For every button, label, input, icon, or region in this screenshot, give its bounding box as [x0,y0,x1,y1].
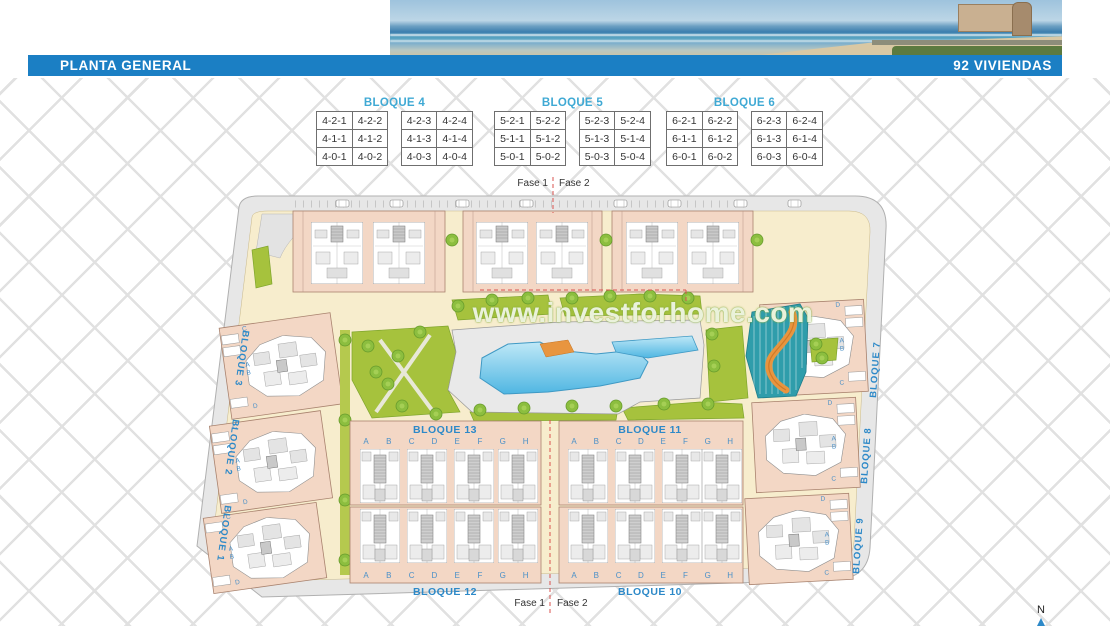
unit-letter: E [455,437,460,446]
unit-letter: G [705,571,711,580]
unit-cell: 4-0-1 [317,148,353,166]
unit-cell: 6-2-1 [667,112,703,130]
unit-cell: 5-0-4 [615,148,651,166]
unit-letter: E [455,571,460,580]
unit-letter: H [523,437,529,446]
unit-letter: C [616,571,622,580]
bloque-13-strip: BLOQUE 13 [350,421,541,505]
bloque-4-table-block: BLOQUE 4 4-2-1 4-2-2 4-2-3 4-2-4 4-1-1 4… [316,97,473,166]
unit-letter: B [386,437,391,446]
fase-gap-cell [388,148,401,166]
page-title: PLANTA GENERAL [60,58,191,73]
unit-letter: A [363,571,369,580]
watchtower-building [958,4,1016,32]
fase-gap-cell [566,148,579,166]
bloque-4-table: 4-2-1 4-2-2 4-2-3 4-2-4 4-1-1 4-1-2 4-1-… [316,111,473,166]
fase-gap-cell [388,112,401,130]
unit-cell: 6-2-4 [787,112,823,130]
unit-cell: 4-1-4 [437,130,473,148]
unit-letter: A [571,571,577,580]
unit-letter: C [409,437,415,446]
unit-cell: 5-0-3 [579,148,615,166]
unit-letter: B [594,571,599,580]
bloque-6-table-title: BLOQUE 6 [666,97,823,109]
unit-cell: 4-2-3 [401,112,437,130]
unit-letter: D [638,437,644,446]
bloque-10-label: BLOQUE 10 [618,586,682,598]
bloque-5-table-title: BLOQUE 5 [494,97,651,109]
fase-gap-cell [566,130,579,148]
unit-letter: F [683,437,688,446]
green-median [340,330,350,575]
unit-cell: 6-1-4 [787,130,823,148]
unit-letter: A [571,437,577,446]
unit-cell: 4-0-3 [401,148,437,166]
unit-cell: 6-2-2 [702,112,738,130]
unit-cell: 6-1-2 [702,130,738,148]
unit-cell: 6-1-3 [751,130,787,148]
unit-letter: D [638,571,644,580]
bloque-4-table-title: BLOQUE 4 [316,97,473,109]
unit-letter: E [661,571,666,580]
unit-cell: 5-1-1 [495,130,531,148]
svg-text:C: C [831,475,836,482]
svg-text:D: D [827,400,832,407]
svg-text:B: B [825,539,830,546]
svg-text:B: B [832,443,837,450]
beach-photo [390,0,1062,57]
fase-gap-cell [738,112,751,130]
svg-text:B: B [840,345,845,352]
unit-cell: 6-1-1 [667,130,703,148]
unit-letter: C [616,437,622,446]
fase-2-label-top: Fase 2 [559,178,590,189]
fase-gap-cell [566,112,579,130]
unit-cell: 4-1-2 [352,130,388,148]
svg-text:C: C [824,569,829,576]
site-plan: C A B D C A B D C A B D [183,174,923,626]
unit-cell: 5-0-2 [530,148,566,166]
unit-letter: B [386,571,391,580]
svg-text:C: C [839,379,844,386]
bloque-11-label: BLOQUE 11 [618,424,681,436]
unit-cell: 5-2-1 [495,112,531,130]
compass-needle-icon [1037,618,1045,626]
north-label: N [1037,605,1045,616]
unit-letter: H [727,571,733,580]
bloque-5-table-block: BLOQUE 5 5-2-1 5-2-2 5-2-3 5-2-4 5-1-1 5… [494,97,651,166]
unit-cell: 4-2-2 [352,112,388,130]
unit-letter: A [363,437,369,446]
unit-letter: D [432,437,438,446]
unit-letter: G [705,437,711,446]
unit-cell: 6-0-1 [667,148,703,166]
unit-cell: 5-1-4 [615,130,651,148]
unit-cell: 4-0-4 [437,148,473,166]
north-compass: N [1037,605,1045,626]
bloque-13-label: BLOQUE 13 [413,424,477,436]
unit-cell: 5-1-2 [530,130,566,148]
unit-cell: 4-1-3 [401,130,437,148]
unit-letter: F [478,437,483,446]
fase-2-label-bottom: Fase 2 [557,598,588,609]
unit-cell: 4-0-2 [352,148,388,166]
fase-gap-cell [388,130,401,148]
unit-letter: D [432,571,438,580]
unit-letter: H [727,437,733,446]
brochure-page: PLANTA GENERAL 92 VIVIENDAS BLOQUE 4 4-2… [0,0,1110,626]
unit-letter: G [500,437,506,446]
unit-cell: 6-0-4 [787,148,823,166]
unit-letter: F [478,571,483,580]
fase-gap-cell [738,130,751,148]
unit-cell: 6-0-2 [702,148,738,166]
top-apartment-slabs [293,211,753,292]
unit-letter: F [683,571,688,580]
surf-line [390,34,1062,36]
watchtower-turret [1012,2,1032,36]
unit-letter: B [594,437,599,446]
fase-1-label-top: Fase 1 [517,178,548,189]
units-count-label: 92 VIVIENDAS [953,58,1052,73]
unit-cell: 5-2-2 [530,112,566,130]
unit-cell: 4-1-1 [317,130,353,148]
unit-cell: 6-2-3 [751,112,787,130]
fase-gap-cell [738,148,751,166]
svg-text:D: D [820,496,825,503]
unit-cell: 6-0-3 [751,148,787,166]
unit-letter: H [523,571,529,580]
bloque-5-table: 5-2-1 5-2-2 5-2-3 5-2-4 5-1-1 5-1-2 5-1-… [494,111,651,166]
bloque-6-table: 6-2-1 6-2-2 6-2-3 6-2-4 6-1-1 6-1-2 6-1-… [666,111,823,166]
unit-cell: 5-1-3 [579,130,615,148]
bloque-11-strip: BLOQUE 11 [559,421,743,505]
bloque-8-building: D A B C [752,397,861,492]
unit-cell: 5-2-3 [579,112,615,130]
unit-cell: 4-2-1 [317,112,353,130]
bloque-6-table-block: BLOQUE 6 6-2-1 6-2-2 6-2-3 6-2-4 6-1-1 6… [666,97,823,166]
fase-1-label-bottom: Fase 1 [514,598,545,609]
bloque-9-building: D A B C [745,493,853,584]
title-bar: PLANTA GENERAL 92 VIVIENDAS [28,55,1062,76]
bloque-12-label: BLOQUE 12 [413,586,477,598]
unit-letter: E [661,437,666,446]
boardwalk [872,40,1062,45]
unit-cell: 5-0-1 [495,148,531,166]
unit-letter: C [409,571,415,580]
unit-cell: 5-2-4 [615,112,651,130]
watermark: www.investforhome.com [393,297,893,329]
unit-cell: 4-2-4 [437,112,473,130]
unit-letter: G [500,571,506,580]
